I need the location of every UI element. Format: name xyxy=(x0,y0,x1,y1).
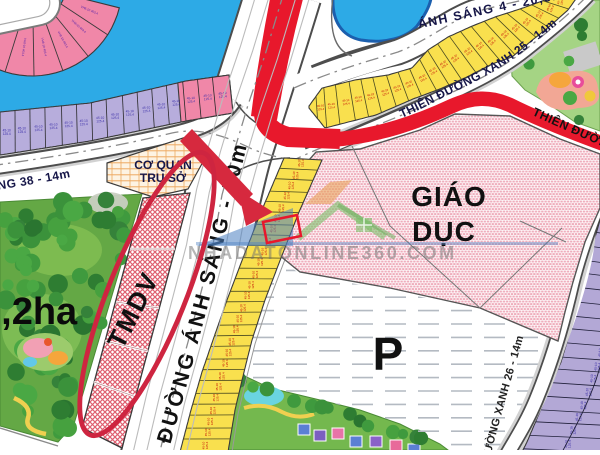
svg-text:45-10125.4: 45-10125.4 xyxy=(287,181,295,189)
svg-text:45-10125.4: 45-10125.4 xyxy=(34,125,43,133)
svg-text:45-10125.4: 45-10125.4 xyxy=(96,116,105,124)
svg-text:6,2ha: 6,2ha xyxy=(0,291,78,333)
svg-text:45-10125.4: 45-10125.4 xyxy=(212,394,219,402)
svg-text:45-10125.4: 45-10125.4 xyxy=(252,270,259,278)
svg-text:45-10125.4: 45-10125.4 xyxy=(187,96,196,104)
svg-text:45-10125.4: 45-10125.4 xyxy=(327,102,335,110)
svg-text:45-10125.4: 45-10125.4 xyxy=(172,99,181,107)
svg-text:45-10125.4: 45-10125.4 xyxy=(222,359,229,367)
svg-text:45-10125.4: 45-10125.4 xyxy=(126,109,135,117)
svg-text:45-10125.4: 45-10125.4 xyxy=(283,192,291,200)
svg-text:45-10125.4: 45-10125.4 xyxy=(207,417,214,425)
svg-text:45-10125.4: 45-10125.4 xyxy=(64,121,73,129)
svg-text:45-10125.4: 45-10125.4 xyxy=(111,112,120,120)
svg-text:45-10125.4: 45-10125.4 xyxy=(215,383,222,391)
svg-text:45-10125.4: 45-10125.4 xyxy=(244,291,251,299)
svg-text:45-10125.4: 45-10125.4 xyxy=(228,338,236,346)
svg-text:45-10125.4: 45-10125.4 xyxy=(49,123,58,131)
svg-text:45-10125.4: 45-10125.4 xyxy=(157,102,166,110)
svg-text:45-10125.4: 45-10125.4 xyxy=(239,304,247,312)
svg-text:45-10125.4: 45-10125.4 xyxy=(79,119,88,127)
svg-text:45-10125.4: 45-10125.4 xyxy=(201,441,208,449)
svg-text:45-10125.4: 45-10125.4 xyxy=(3,129,11,136)
svg-text:P: P xyxy=(373,328,404,380)
svg-text:45-10125.4: 45-10125.4 xyxy=(218,372,225,380)
svg-text:GIÁO: GIÁO xyxy=(411,181,487,212)
svg-text:45-10125.4: 45-10125.4 xyxy=(236,314,244,322)
svg-text:45-10125.4: 45-10125.4 xyxy=(317,103,325,111)
svg-text:45-10125.4: 45-10125.4 xyxy=(225,348,233,356)
svg-text:45-10125.4: 45-10125.4 xyxy=(292,171,300,179)
svg-text:NHADATONLINE360.COM: NHADATONLINE360.COM xyxy=(188,243,457,263)
svg-text:45-10125.4: 45-10125.4 xyxy=(278,204,286,212)
svg-text:45-10125.4: 45-10125.4 xyxy=(297,159,305,167)
svg-text:45-10125.4: 45-10125.4 xyxy=(18,127,26,134)
svg-text:45-10125.4: 45-10125.4 xyxy=(142,105,151,113)
svg-text:45-10125.4: 45-10125.4 xyxy=(203,93,212,101)
svg-text:45-10125.4: 45-10125.4 xyxy=(209,406,216,414)
svg-text:45-10125.4: 45-10125.4 xyxy=(580,401,588,410)
svg-text:45-10125.4: 45-10125.4 xyxy=(248,281,255,289)
svg-text:45-10125.4: 45-10125.4 xyxy=(204,428,211,436)
svg-text:45-10125.4: 45-10125.4 xyxy=(232,325,240,333)
